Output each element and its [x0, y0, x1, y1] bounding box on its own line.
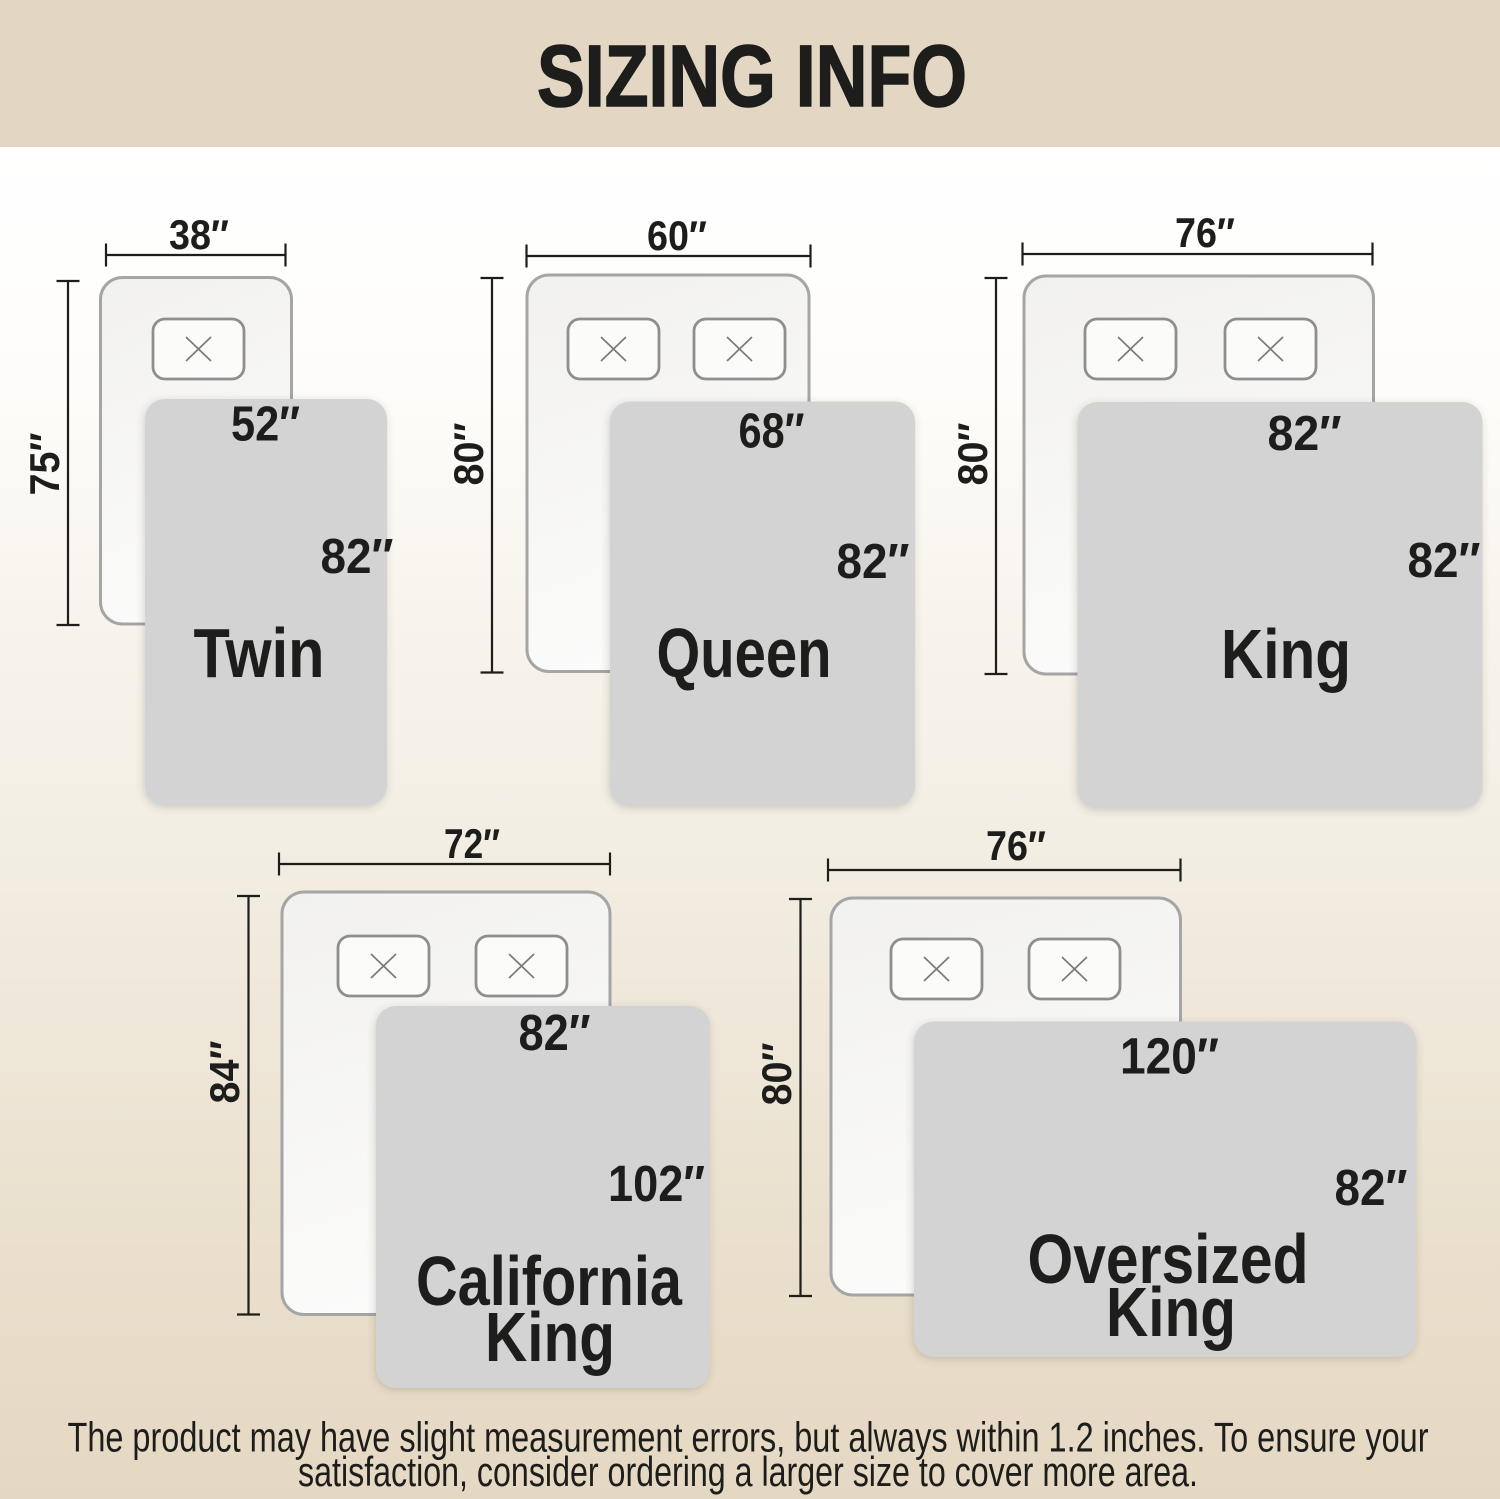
svg-text:120″: 120″	[1120, 1028, 1219, 1085]
svg-text:84″: 84″	[201, 1041, 248, 1104]
svg-text:82″: 82″	[1408, 534, 1481, 588]
svg-text:76″: 76″	[1175, 209, 1235, 256]
svg-text:72″: 72″	[444, 820, 500, 867]
svg-text:82″: 82″	[321, 530, 394, 584]
svg-text:Queen: Queen	[657, 614, 832, 692]
svg-text:80″: 80″	[753, 1043, 800, 1106]
svg-text:King: King	[1106, 1273, 1236, 1351]
svg-text:SIZING INFO: SIZING INFO	[537, 28, 967, 125]
svg-text:King: King	[1221, 615, 1351, 693]
svg-text:80″: 80″	[949, 423, 996, 486]
svg-text:82″: 82″	[519, 1004, 591, 1061]
svg-text:82″: 82″	[837, 535, 910, 589]
svg-text:52″: 52″	[231, 398, 300, 452]
svg-text:82″: 82″	[1268, 407, 1342, 461]
svg-text:Twin: Twin	[194, 614, 325, 692]
svg-text:68″: 68″	[739, 405, 805, 459]
svg-text:75″: 75″	[21, 433, 68, 496]
svg-text:satisfaction, consider orderin: satisfaction, consider ordering a larger…	[298, 1448, 1198, 1495]
svg-text:38″: 38″	[169, 211, 229, 258]
svg-text:76″: 76″	[986, 822, 1046, 869]
svg-text:King: King	[485, 1298, 615, 1376]
svg-text:60″: 60″	[647, 212, 707, 259]
svg-text:80″: 80″	[445, 423, 492, 486]
svg-text:82″: 82″	[1335, 1159, 1408, 1216]
svg-text:102″: 102″	[608, 1155, 705, 1212]
